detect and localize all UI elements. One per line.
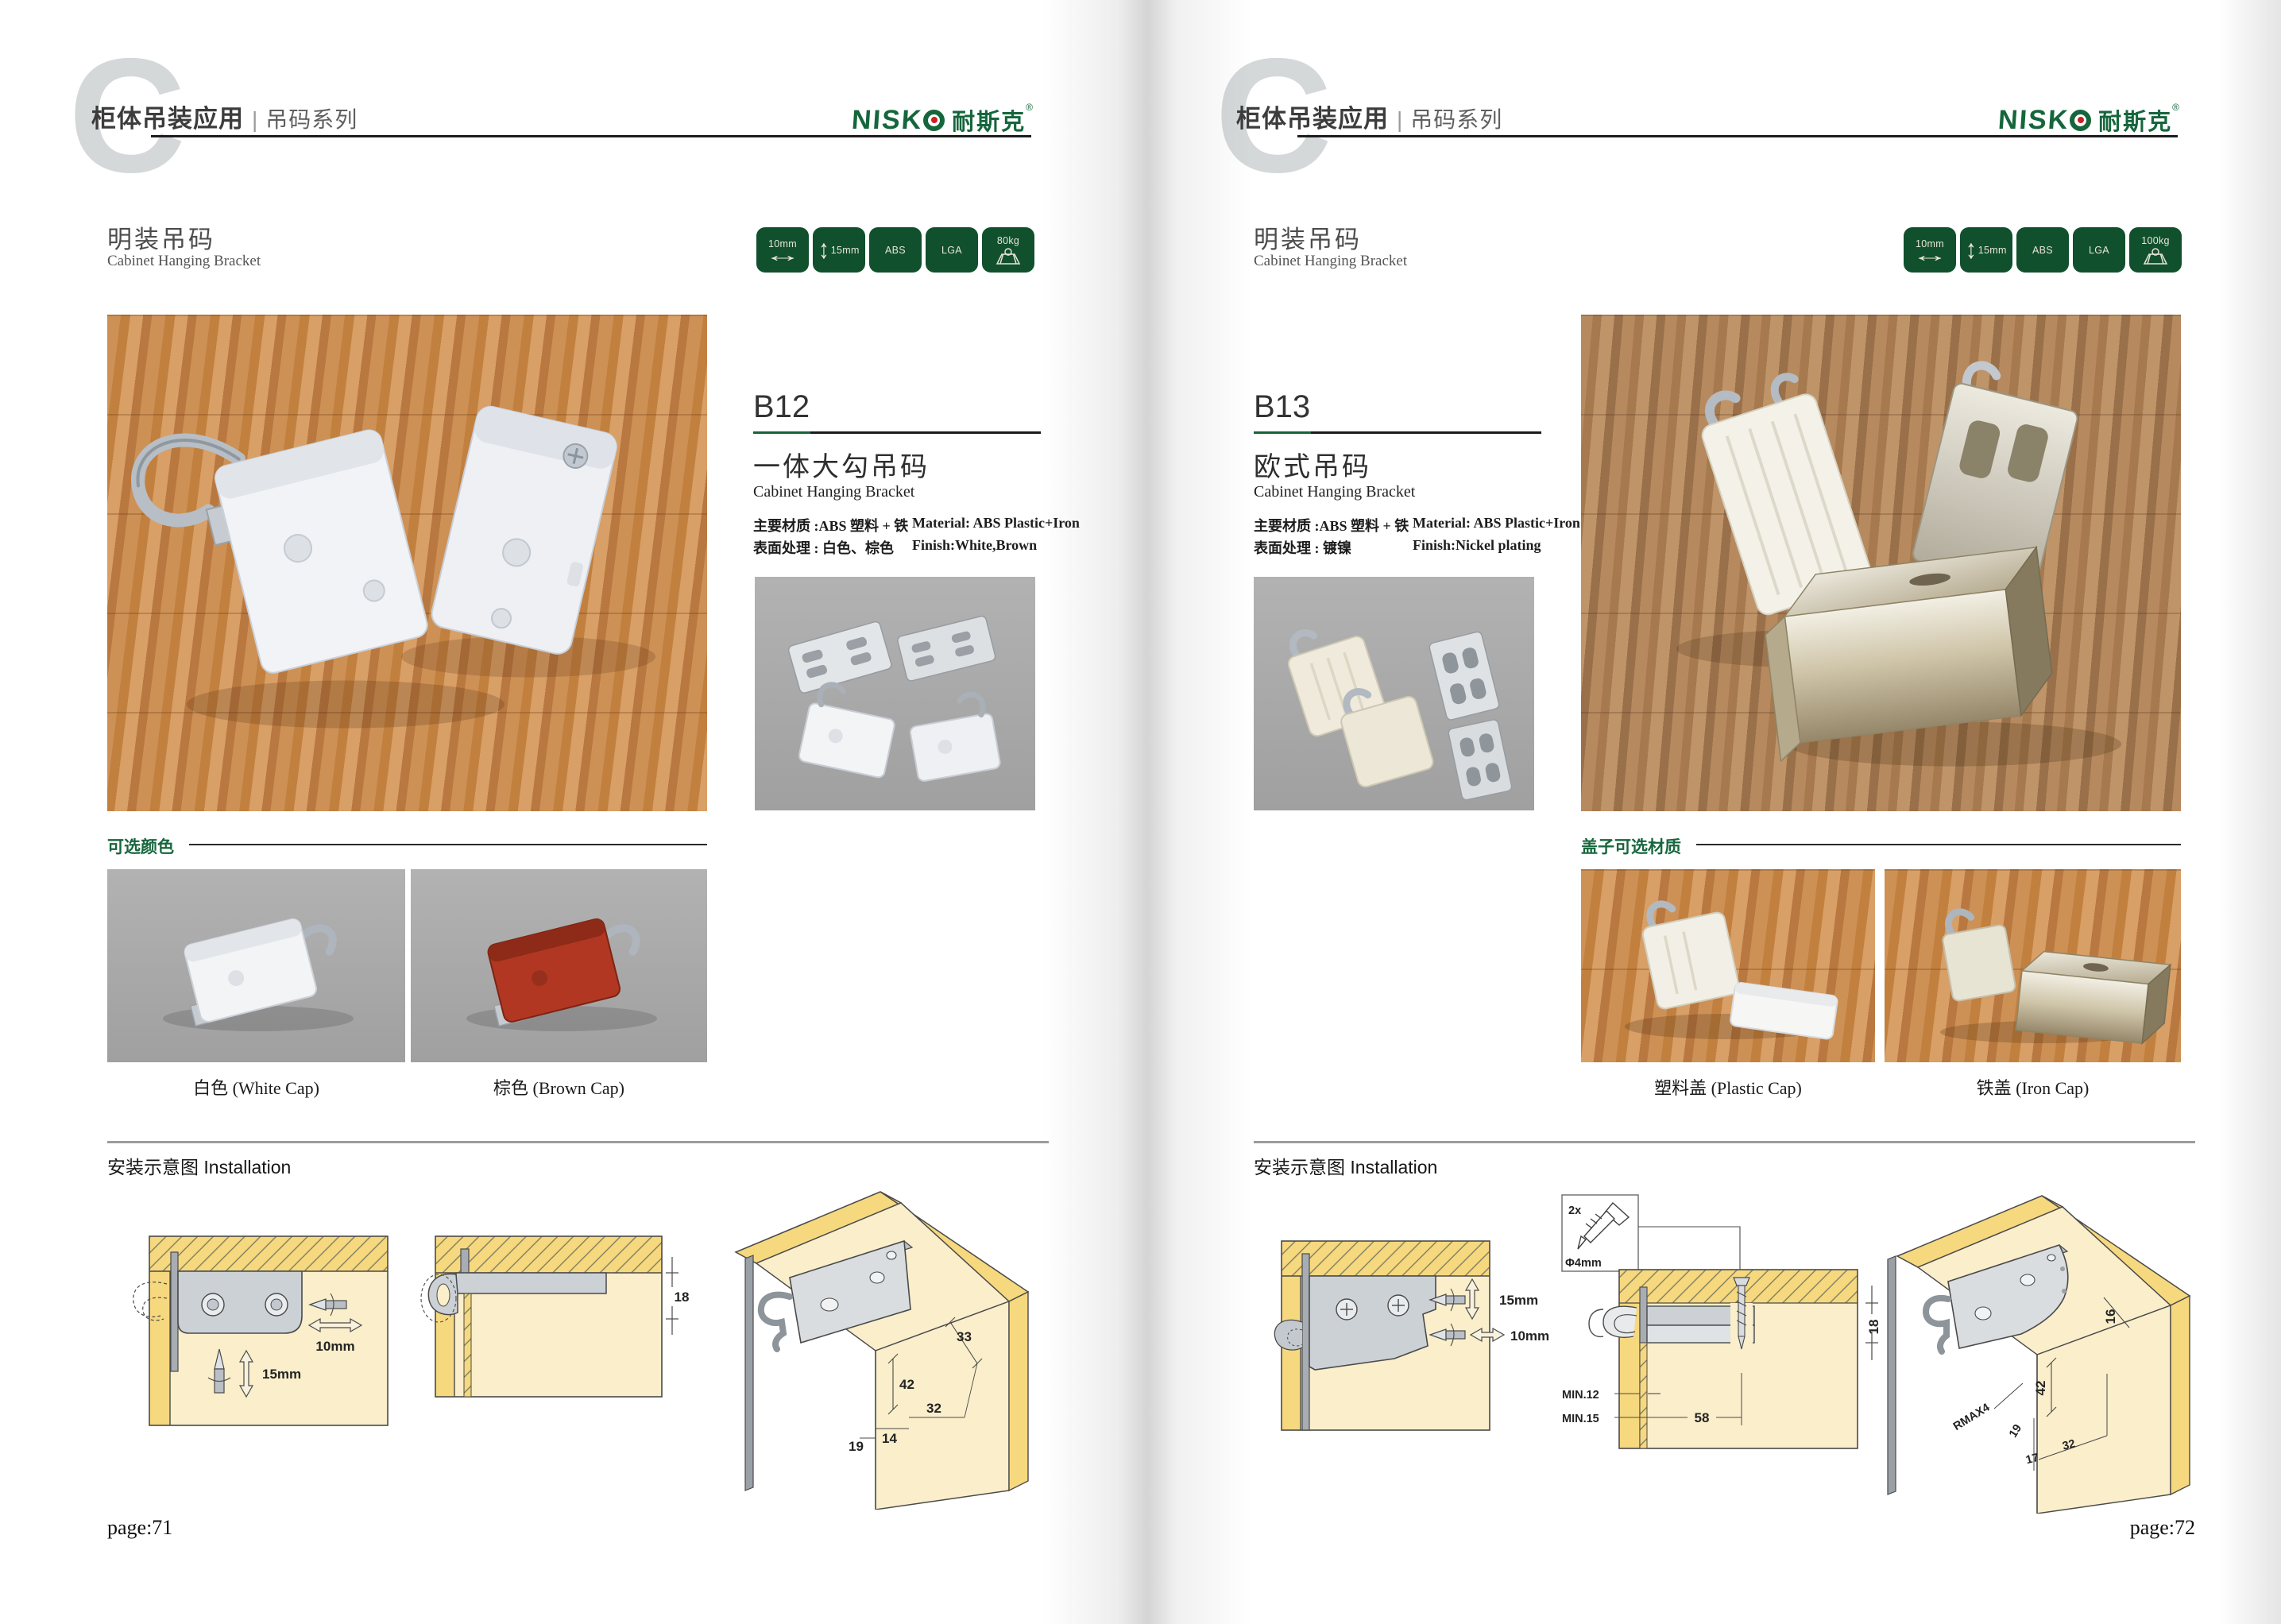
logo-registered-mark: ®: [2172, 102, 2179, 113]
page-header: 柜体吊装应用 | 吊码系列: [1236, 99, 1502, 134]
dim-label: 58: [1695, 1410, 1710, 1425]
spec-badges: 10mm ↔ ↕ 15mm ABS LGA 80kg: [756, 227, 1034, 273]
logo-o-icon: [2070, 110, 2091, 131]
section-title-cn: 明装吊码: [1254, 219, 1362, 255]
options-rule: [1696, 844, 2181, 845]
spec-badges: 10mm ↔ ↕ 15mm ABS LGA 100kg: [1904, 227, 2182, 273]
screw-qty-label: 2x: [1568, 1204, 1581, 1217]
header-divider: |: [252, 107, 257, 133]
badge-material: ABS: [869, 227, 922, 273]
brown-cap-illustration: [411, 869, 707, 1062]
product-name-cn: 一体大勾吊码: [753, 445, 930, 484]
installation-diagram-perspective: 16 42 RMAX4 19 17 32: [1875, 1180, 2209, 1514]
option-caption-brown: 棕色 (Brown Cap): [411, 1074, 707, 1100]
header-title: 柜体吊装应用: [1236, 99, 1389, 134]
iron-cap-illustration: [1885, 869, 2181, 1062]
white-cap-illustration: [107, 869, 405, 1062]
finish-cn: 表面处理 : 白色、棕色: [753, 537, 912, 558]
finish-cn: 表面处理 : 镀镍: [1254, 537, 1413, 558]
page-right: C 柜体吊装应用 | 吊码系列 NISK 耐斯克 ® 明装吊码 Cabinet …: [1140, 0, 2281, 1624]
product-name-en: Cabinet Hanging Bracket: [1254, 483, 1415, 501]
material-row: 主要材质 :ABS 塑料 + 铁 Material: ABS Plastic+I…: [1254, 515, 1580, 536]
option-caption-iron: 铁盖 (Iron Cap): [1885, 1074, 2181, 1100]
badge-cert-label: LGA: [941, 245, 962, 256]
installation-rule: [1254, 1141, 2195, 1143]
product-name-en: Cabinet Hanging Bracket: [753, 483, 914, 501]
horizontal-arrow-icon: ↔: [1911, 249, 1949, 261]
logo-registered-mark: ®: [1026, 102, 1033, 113]
dim-label: 18: [675, 1290, 690, 1305]
parts-illustration: [755, 577, 1035, 810]
section-title-en: Cabinet Hanging Bracket: [107, 253, 261, 270]
header-divider: |: [1397, 107, 1402, 133]
section-title-cn: 明装吊码: [107, 219, 215, 255]
installation-rule: [107, 1141, 1049, 1143]
installation-title: 安装示意图 Installation: [1254, 1152, 1437, 1179]
badge-width: 10mm ↔: [1904, 227, 1956, 273]
dim-label: RMAX4: [1951, 1402, 1993, 1433]
dim-label: 19: [849, 1439, 864, 1454]
plastic-cap-illustration: [1581, 869, 1875, 1062]
logo-text-latin: NISK: [1997, 105, 2070, 136]
option-photo-plastic: [1581, 869, 1875, 1062]
badge-height-label: 15mm: [831, 245, 860, 256]
vertical-arrow-icon: ↕: [1966, 237, 1977, 264]
logo-red-dot-icon: [931, 117, 938, 123]
load-capacity-icon: [992, 248, 1024, 265]
options-rule: [189, 844, 707, 845]
product-photo-main: [1581, 315, 2181, 811]
option-photo-white: [107, 869, 405, 1062]
logo-text-cn: 耐斯克: [2098, 103, 2172, 137]
bracket-illustration: [107, 315, 707, 811]
logo-o-icon: [923, 110, 945, 131]
installation-diagram-section: 2x Φ4mm: [1557, 1190, 1891, 1472]
dim-label: 33: [957, 1329, 972, 1344]
header-subtitle: 吊码系列: [1410, 102, 1502, 134]
material-cn: 主要材质 :ABS 塑料 + 铁: [1254, 515, 1413, 536]
book-binding-gutter: [1042, 0, 1252, 1624]
header-subtitle: 吊码系列: [265, 102, 358, 134]
badge-load-label: 80kg: [997, 235, 1019, 246]
catalog-spread: C 柜体吊装应用 | 吊码系列 NISK 耐斯克 ® 明装吊码 Cabinet …: [0, 0, 2281, 1624]
dim-label: 16: [2103, 1309, 2118, 1324]
finish-en: Finish:Nickel plating: [1413, 537, 1541, 558]
parts-illustration: [1254, 577, 1534, 810]
dim-label: 42: [899, 1377, 914, 1392]
badge-cert-label: LGA: [2089, 245, 2109, 256]
page-header: 柜体吊装应用 | 吊码系列: [91, 99, 358, 134]
section-title-en: Cabinet Hanging Bracket: [1254, 253, 1407, 270]
page-edge-shadow: [2217, 0, 2281, 1624]
option-caption-plastic: 塑料盖 (Plastic Cap): [1581, 1074, 1875, 1100]
badge-load: 100kg: [2129, 227, 2182, 273]
option-photo-iron: [1885, 869, 2181, 1062]
product-code-rule: [1254, 431, 1541, 434]
dim-label: 15mm: [1499, 1293, 1538, 1308]
dim-label: 19: [2007, 1422, 2024, 1440]
brand-logo: NISK 耐斯克 ®: [852, 103, 1033, 137]
screw-dia-label: Φ4mm: [1565, 1257, 1602, 1270]
header-title: 柜体吊装应用: [91, 99, 244, 134]
badge-cert: LGA: [926, 227, 978, 273]
installation-diagram-adjustment: 15mm 10mm: [1267, 1230, 1561, 1460]
options-title: 可选颜色: [107, 834, 174, 858]
badge-material: ABS: [2016, 227, 2069, 273]
page-number: page:71: [107, 1516, 172, 1540]
dim-label: 32: [926, 1401, 941, 1416]
finish-en: Finish:White,Brown: [912, 537, 1037, 558]
product-photo-main: [107, 315, 707, 811]
product-code: B13: [1254, 389, 1310, 425]
dim-label: 10mm: [1510, 1328, 1549, 1344]
badge-height: ↕ 15mm: [1960, 227, 2012, 273]
product-code-rule: [753, 431, 1041, 434]
badge-height-label: 15mm: [1978, 245, 2007, 256]
finish-row: 表面处理 : 白色、棕色 Finish:White,Brown: [753, 537, 1037, 558]
material-cn: 主要材质 :ABS 塑料 + 铁: [753, 515, 912, 536]
bracket-illustration: [1581, 315, 2181, 811]
logo-text-latin: NISK: [851, 105, 924, 136]
page-left: C 柜体吊装应用 | 吊码系列 NISK 耐斯克 ® 明装吊码 Cabinet …: [0, 0, 1141, 1624]
installation-diagram-section: 18: [419, 1225, 694, 1412]
dim-label: MIN.15: [1562, 1413, 1599, 1425]
badge-load: 80kg: [982, 227, 1034, 273]
product-photo-parts: [755, 577, 1035, 810]
dim-label: 42: [2033, 1381, 2048, 1396]
page-number: page:72: [2014, 1516, 2195, 1540]
installation-diagram-adjustment: 10mm 15mm: [126, 1222, 400, 1444]
installation-title: 安装示意图 Installation: [107, 1152, 291, 1179]
badge-material-label: ABS: [2032, 245, 2053, 256]
installation-diagram-perspective: 33 42 32 14 19: [713, 1176, 1047, 1510]
options-title: 盖子可选材质: [1581, 834, 1681, 858]
badge-load-label: 100kg: [2141, 235, 2170, 246]
badge-cert: LGA: [2073, 227, 2125, 273]
finish-row: 表面处理 : 镀镍 Finish:Nickel plating: [1254, 537, 1541, 558]
horizontal-arrow-icon: ↔: [764, 249, 802, 261]
dim-label: 14: [882, 1431, 897, 1446]
dim-label: 10mm: [315, 1339, 354, 1354]
dim-label: MIN.12: [1562, 1389, 1599, 1402]
badge-width: 10mm ↔: [756, 227, 809, 273]
load-capacity-icon: [2140, 248, 2171, 265]
logo-red-dot-icon: [2078, 117, 2084, 123]
product-code: B12: [753, 389, 810, 425]
logo-text-cn: 耐斯克: [952, 103, 1026, 137]
material-en: Material: ABS Plastic+Iron: [1413, 515, 1580, 536]
product-name-cn: 欧式吊码: [1254, 445, 1371, 484]
brand-logo: NISK 耐斯克 ®: [1998, 103, 2179, 137]
product-photo-parts: [1254, 577, 1534, 810]
material-row: 主要材质 :ABS 塑料 + 铁 Material: ABS Plastic+I…: [753, 515, 1080, 536]
vertical-arrow-icon: ↕: [818, 237, 829, 264]
badge-height: ↕ 15mm: [813, 227, 865, 273]
dim-label: 15mm: [262, 1367, 301, 1382]
option-photo-brown: [411, 869, 707, 1062]
badge-material-label: ABS: [885, 245, 906, 256]
option-caption-white: 白色 (White Cap): [107, 1074, 405, 1100]
